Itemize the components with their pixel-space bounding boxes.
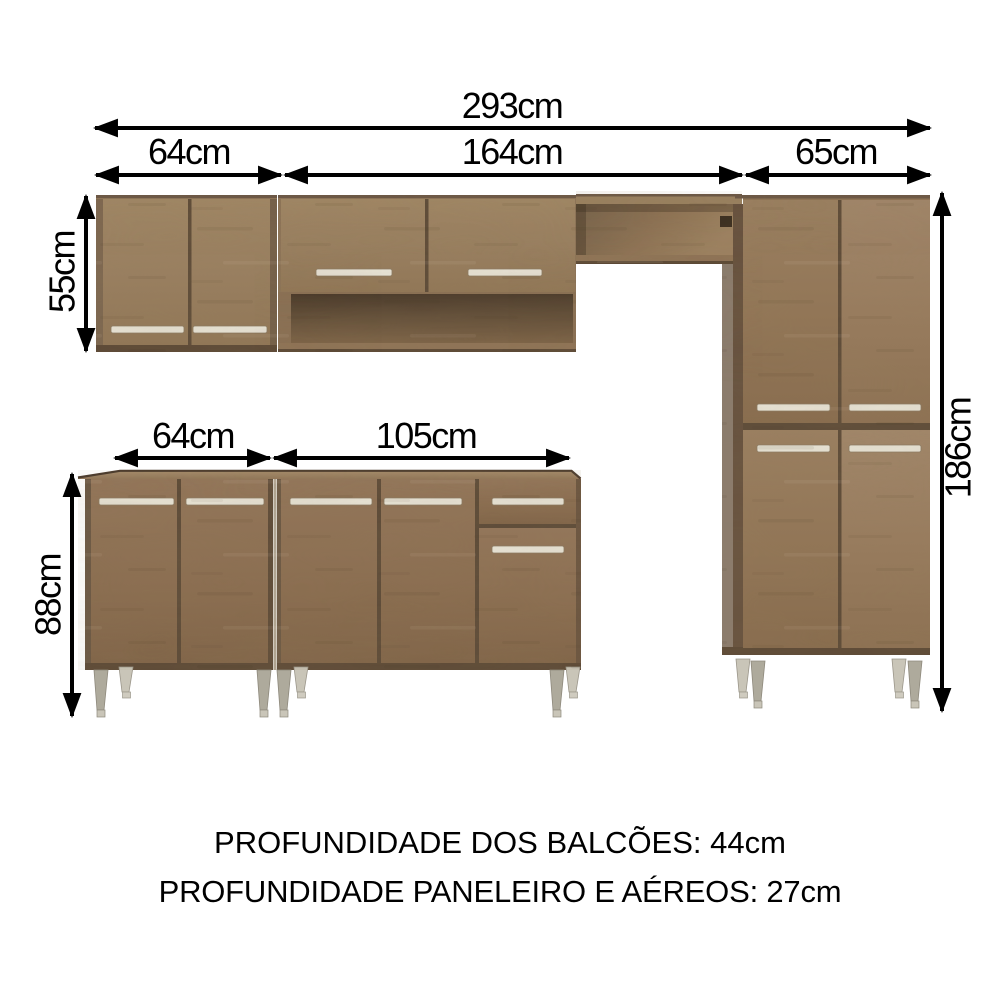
svg-text:64cm: 64cm <box>148 131 230 172</box>
svg-text:55cm: 55cm <box>42 231 83 313</box>
svg-text:164cm: 164cm <box>462 131 563 172</box>
svg-text:88cm: 88cm <box>28 554 69 636</box>
svg-text:PROFUNDIDADE PANELEIRO E AÉREO: PROFUNDIDADE PANELEIRO E AÉREOS: 27cm <box>159 874 842 909</box>
svg-text:PROFUNDIDADE DOS BALCÕES: 44cm: PROFUNDIDADE DOS BALCÕES: 44cm <box>214 825 786 860</box>
svg-text:293cm: 293cm <box>462 85 563 126</box>
svg-text:64cm: 64cm <box>152 415 234 456</box>
svg-text:105cm: 105cm <box>376 415 477 456</box>
svg-text:65cm: 65cm <box>795 131 877 172</box>
